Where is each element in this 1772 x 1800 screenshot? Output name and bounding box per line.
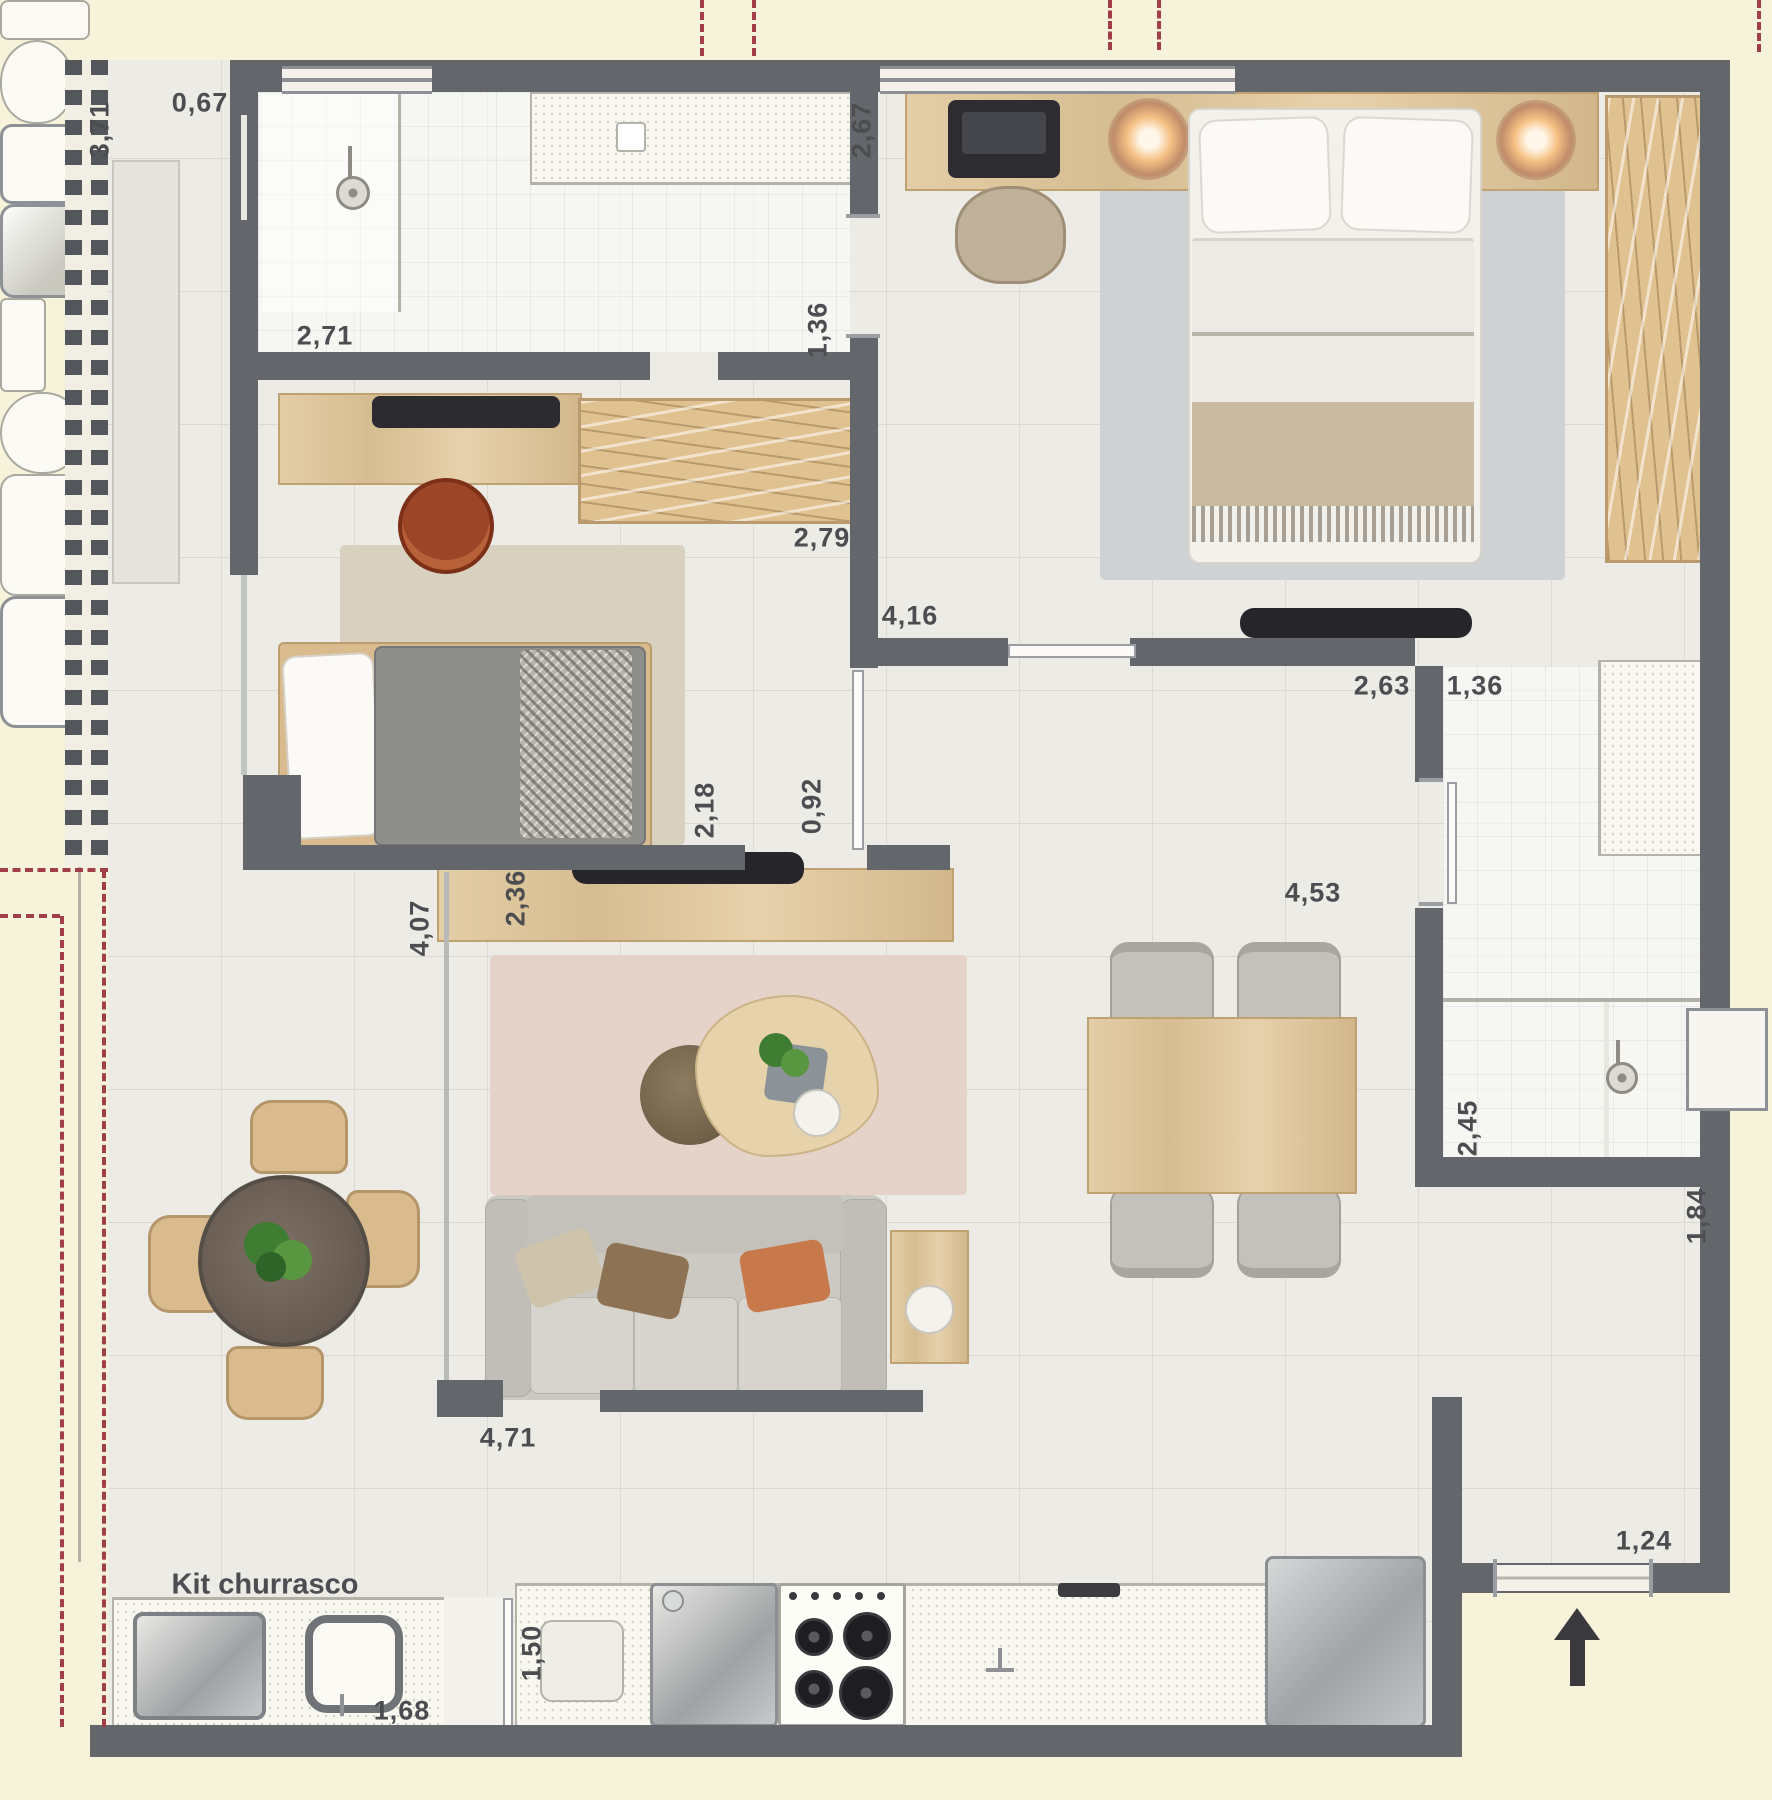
window [880,66,1235,94]
projection-line [102,870,106,1727]
shower-arm [348,146,352,178]
floor-plan: 3,71 0,67 2,71 2,67 1,36 2,79 4,16 2,63 … [0,0,1772,1800]
bedside-lamp-icon [1496,100,1576,180]
bedroom2-desk-chair [398,478,494,574]
double-bed-pillow [1198,116,1332,234]
sink-drain [616,122,646,152]
toilet-icon [0,40,74,124]
dim-2-45: 2,45 [1453,1100,1484,1157]
stove-knob [855,1592,863,1600]
wall [230,352,650,380]
door-jamb [1493,1559,1497,1597]
dim-2-71: 2,71 [297,321,354,352]
toilet-tank [0,298,46,392]
monitor-icon [372,396,560,428]
sofa-seat [530,1297,634,1394]
projection-line [0,868,108,872]
wall [1700,60,1730,1593]
bathroom2-door-leaf [1447,782,1457,904]
toilet-tank [0,0,90,40]
dim-1-68: 1,68 [374,1696,431,1727]
faucet-icon [340,1694,344,1716]
double-bed-blanket [1192,402,1474,506]
double-bed-pillow [1340,116,1474,234]
service-door-opening [444,1597,512,1725]
stove-burner [795,1670,833,1708]
stove-burner [839,1666,893,1720]
shower-icon [1606,1062,1638,1094]
dim-4-16: 4,16 [882,601,939,632]
dim-1-24: 1,24 [1616,1526,1673,1557]
dim-2-18: 2,18 [690,782,721,839]
dining-chair [1237,1186,1341,1278]
balcony-chair-north [250,1100,348,1174]
projection-line [1108,0,1112,50]
shower-icon [336,176,370,210]
wall [1130,638,1415,666]
stove-knob [877,1592,885,1600]
door-jamb [846,334,880,338]
entry-arrow-icon [1554,1608,1600,1640]
balcony-chair-south [226,1346,324,1420]
projection-line [0,914,60,918]
washer-knob [662,1590,684,1612]
wall [867,845,950,870]
projection-line [60,916,64,1727]
wall [850,338,878,668]
coffee-table-tray [793,1089,841,1137]
master-wardrobe [1605,95,1706,563]
fridge [1265,1556,1426,1728]
bathroom1-vanity [530,92,854,185]
single-bed-blanket [520,650,632,838]
door-jamb [846,214,880,218]
master-sliding-door [1008,644,1136,658]
projection-line [700,0,704,56]
kit-churrasco-label: Kit churrasco [172,1569,359,1602]
master-tv-icon [1240,608,1472,638]
wall [868,638,1008,666]
dim-2-36: 2,36 [501,870,532,927]
plant-icon [256,1252,286,1282]
dim-1-36: 1,36 [803,302,834,359]
dim-1-50: 1,50 [517,1625,548,1682]
double-bed-fringe [1192,506,1474,542]
dining-chair [1110,1186,1214,1278]
bedroom2-door-leaf [852,670,864,850]
projection-line [752,0,756,56]
balcony-glass-door [444,872,449,1380]
dim-3-71: 3,71 [85,102,116,159]
faucet-icon [998,1648,1002,1672]
wall [90,1725,1462,1757]
dim-0-92: 0,92 [797,778,828,835]
wall [1415,908,1443,1160]
dim-2-67: 2,67 [847,102,878,159]
service-door-leaf [503,1598,513,1728]
sofa-armrest [840,1199,887,1397]
dim-4-07: 4,07 [405,900,436,957]
projection-line [1757,0,1761,52]
counter-hob [1058,1583,1120,1597]
wall [1415,666,1443,782]
bedroom2-wardrobe [578,398,854,524]
stove-burner [843,1612,891,1660]
wall [600,1390,923,1412]
shower-stall [262,94,401,312]
side-table-tray [905,1285,954,1334]
balcony-planter [112,160,180,584]
shower-glass [1443,998,1700,1002]
master-desk-chair [955,186,1066,284]
dim-1-36: 1,36 [1447,671,1504,702]
bedside-lamp-icon [1108,98,1190,180]
stove-knob [811,1592,819,1600]
dim-4-71: 4,71 [480,1423,537,1454]
wall [1415,1157,1730,1187]
exterior-patch [1462,1593,1772,1800]
stove-knob [789,1592,797,1600]
door-jamb [1419,902,1443,906]
window [282,66,432,94]
dim-1-84: 1,84 [1682,1188,1713,1245]
entry-threshold [1497,1565,1649,1591]
barbecue-grill-icon [133,1612,266,1720]
stove-icon [778,1583,906,1727]
door-jamb [1649,1559,1653,1597]
dim-2-79: 2,79 [794,523,851,554]
bedroom2-balcony-door [241,575,247,775]
wall-column [437,1380,503,1417]
plant-icon [781,1049,809,1077]
dim-4-53: 4,53 [1285,878,1342,909]
sofa-armrest [485,1199,532,1397]
projection-line [1157,0,1161,50]
bathroom2-vanity [1598,660,1707,856]
wall [243,845,745,870]
duct-shaft [1686,1008,1768,1111]
stove-burner [795,1618,833,1656]
dining-table [1087,1017,1357,1194]
brise-hatch-strip [65,60,108,867]
sofa [485,1195,885,1400]
bathroom1-window-slot [241,115,247,220]
laptop-screen [962,112,1046,154]
dim-0-67: 0,67 [172,88,229,119]
laundry-tank-basin [540,1620,624,1702]
dim-2-63: 2,63 [1354,671,1411,702]
balcony-slab-edge [78,867,81,1562]
door-jamb [1419,778,1443,782]
double-bed-duvet [1192,238,1474,411]
entry-arrow-stem [1570,1638,1585,1686]
stove-knob [833,1592,841,1600]
duvet-fold [1192,332,1474,336]
